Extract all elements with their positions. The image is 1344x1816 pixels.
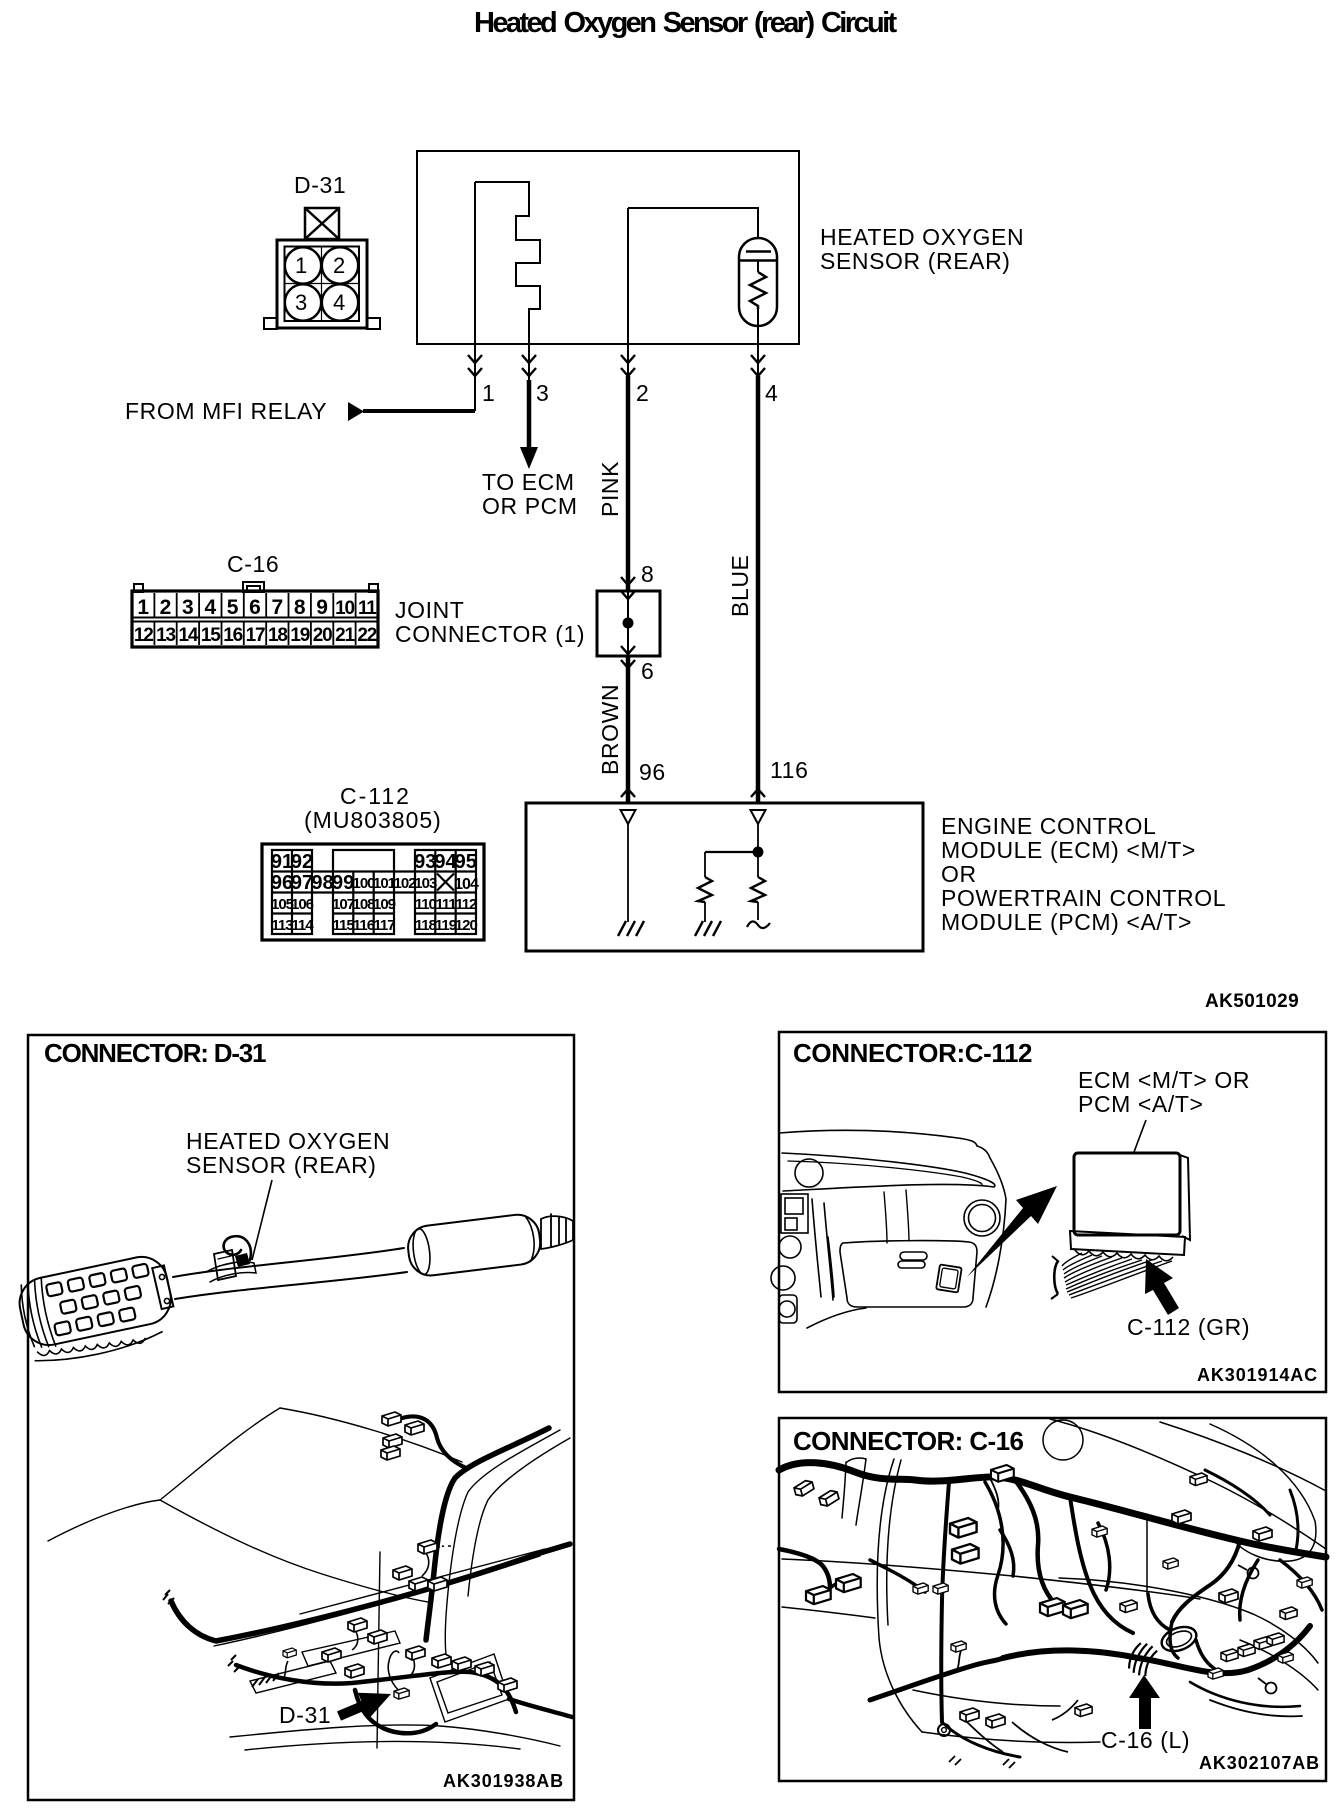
svg-text:97: 97 (291, 872, 313, 894)
svg-text:109: 109 (373, 896, 396, 913)
svg-text:112: 112 (455, 896, 477, 913)
svg-text:2: 2 (160, 596, 172, 619)
svg-text:16: 16 (223, 625, 242, 646)
svg-text:98: 98 (311, 872, 333, 894)
svg-text:11: 11 (358, 598, 377, 619)
svg-text:110: 110 (415, 896, 437, 913)
svg-text:1: 1 (295, 253, 307, 278)
svg-text:15: 15 (201, 625, 221, 646)
svg-text:19: 19 (290, 625, 309, 646)
svg-text:106: 106 (291, 896, 314, 913)
svg-text:3: 3 (182, 596, 194, 619)
svg-text:104: 104 (454, 876, 479, 893)
svg-text:120: 120 (455, 917, 478, 934)
svg-text:17: 17 (246, 625, 265, 646)
svg-text:102: 102 (393, 875, 416, 892)
svg-text:95: 95 (455, 851, 477, 873)
svg-text:20: 20 (313, 625, 332, 646)
svg-text:108: 108 (352, 896, 375, 913)
svg-text:18: 18 (268, 625, 287, 646)
svg-text:99: 99 (332, 872, 354, 894)
svg-text:119: 119 (435, 917, 457, 934)
svg-text:2: 2 (333, 253, 345, 278)
svg-text:3: 3 (295, 290, 307, 315)
svg-text:5: 5 (227, 596, 239, 619)
svg-text:91: 91 (271, 851, 293, 873)
svg-text:113: 113 (271, 917, 293, 934)
svg-text:1: 1 (137, 596, 149, 619)
svg-text:100: 100 (352, 875, 375, 892)
svg-text:8: 8 (294, 596, 306, 619)
svg-text:111: 111 (435, 896, 456, 913)
svg-text:6: 6 (249, 596, 261, 619)
svg-text:117: 117 (373, 917, 395, 934)
svg-text:4: 4 (333, 290, 345, 315)
svg-text:9: 9 (316, 596, 328, 619)
svg-text:14: 14 (179, 625, 199, 646)
svg-text:114: 114 (291, 917, 314, 934)
svg-text:12: 12 (134, 625, 153, 646)
svg-text:92: 92 (291, 851, 313, 873)
svg-text:96: 96 (271, 872, 293, 894)
svg-text:118: 118 (415, 917, 437, 934)
svg-text:116: 116 (353, 917, 375, 934)
svg-text:103: 103 (414, 875, 437, 892)
svg-text:10: 10 (335, 598, 354, 619)
svg-text:93: 93 (414, 851, 436, 873)
svg-text:7: 7 (272, 596, 284, 619)
svg-text:21: 21 (335, 625, 355, 646)
svg-text:22: 22 (357, 625, 376, 646)
svg-text:13: 13 (156, 625, 175, 646)
svg-text:107: 107 (332, 896, 355, 913)
svg-text:101: 101 (373, 875, 396, 892)
svg-text:4: 4 (204, 596, 216, 619)
svg-text:115: 115 (332, 917, 354, 934)
